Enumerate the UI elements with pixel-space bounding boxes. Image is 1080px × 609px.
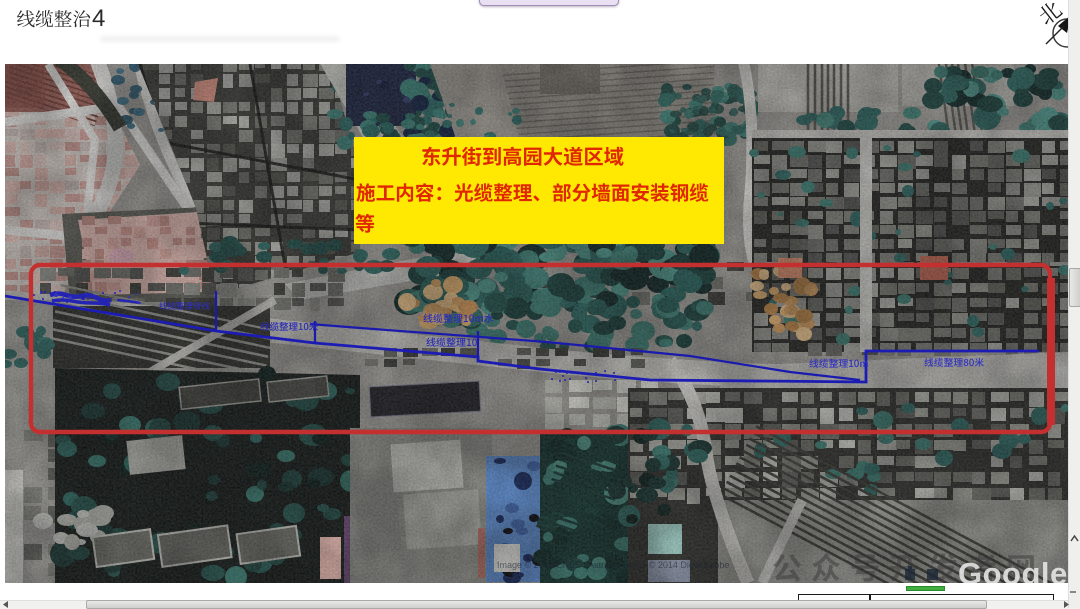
svg-text:Image © 2014 CNES / Astrium I: Image © 2014 CNES / Astrium Image © 2014… <box>497 560 729 570</box>
svg-text:Google: Google <box>958 556 1068 591</box>
